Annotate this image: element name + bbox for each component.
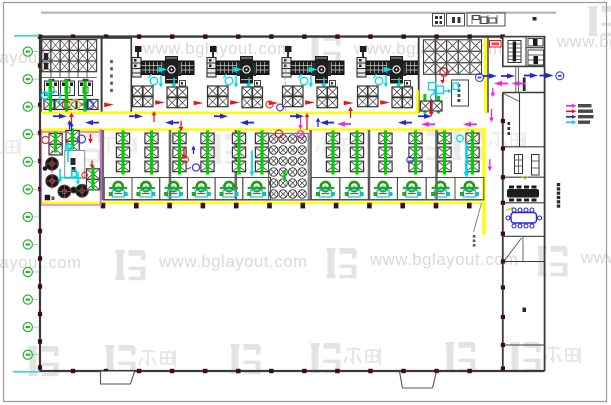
svg-text:www.bglayout.com: www.bglayout.com (142, 39, 292, 58)
svg-text:www.bglayout.com: www.bglayout.com (158, 252, 308, 271)
svg-text:www.bglayout.com: www.bglayout.com (369, 250, 519, 269)
svg-text:www.bglayout.com: www.bglayout.com (556, 32, 611, 51)
